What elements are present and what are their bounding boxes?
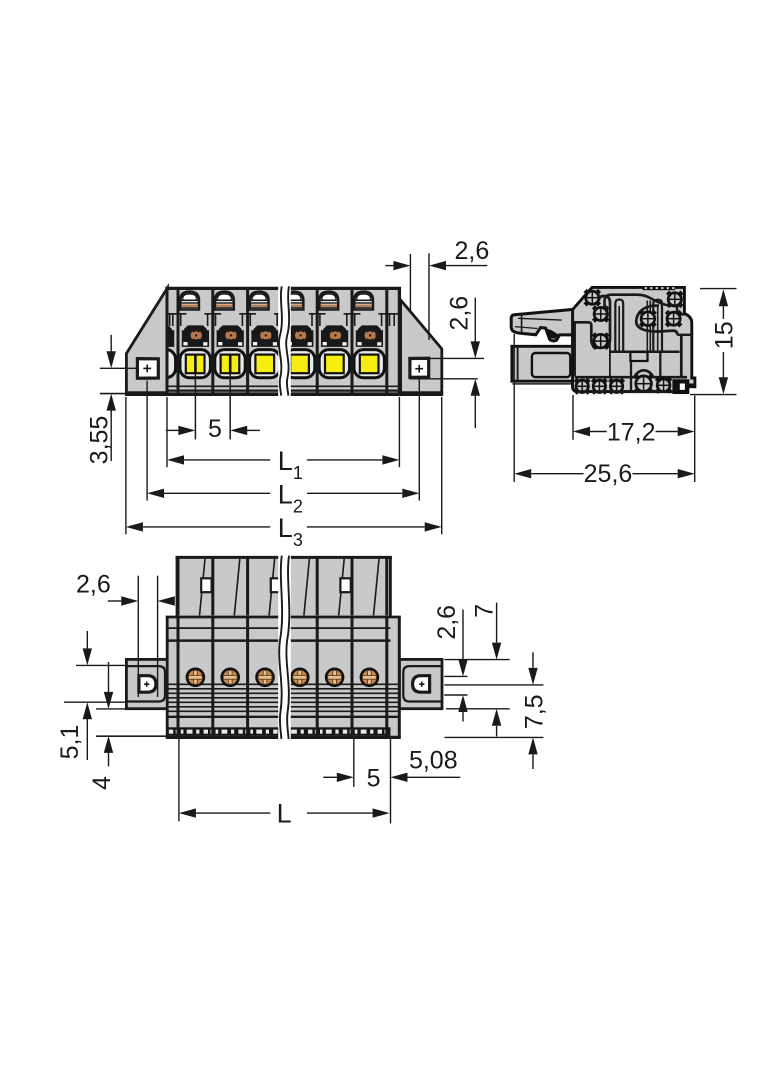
svg-text:L: L: [277, 799, 292, 829]
svg-text:2,6: 2,6: [76, 571, 111, 599]
svg-text:5,1: 5,1: [56, 725, 84, 760]
svg-text:7,5: 7,5: [521, 694, 549, 729]
svg-text:5: 5: [367, 765, 381, 793]
svg-text:2,6: 2,6: [455, 237, 490, 265]
svg-text:3,55: 3,55: [85, 416, 113, 465]
svg-text:5: 5: [208, 415, 222, 443]
svg-text:17,2: 17,2: [607, 418, 656, 446]
svg-text:7: 7: [471, 604, 499, 618]
svg-text:2,6: 2,6: [445, 296, 473, 331]
svg-text:15: 15: [710, 321, 738, 349]
svg-text:25,6: 25,6: [584, 460, 633, 488]
svg-text:2,6: 2,6: [433, 605, 461, 640]
svg-text:5,08: 5,08: [409, 746, 458, 774]
svg-text:4: 4: [88, 776, 116, 790]
